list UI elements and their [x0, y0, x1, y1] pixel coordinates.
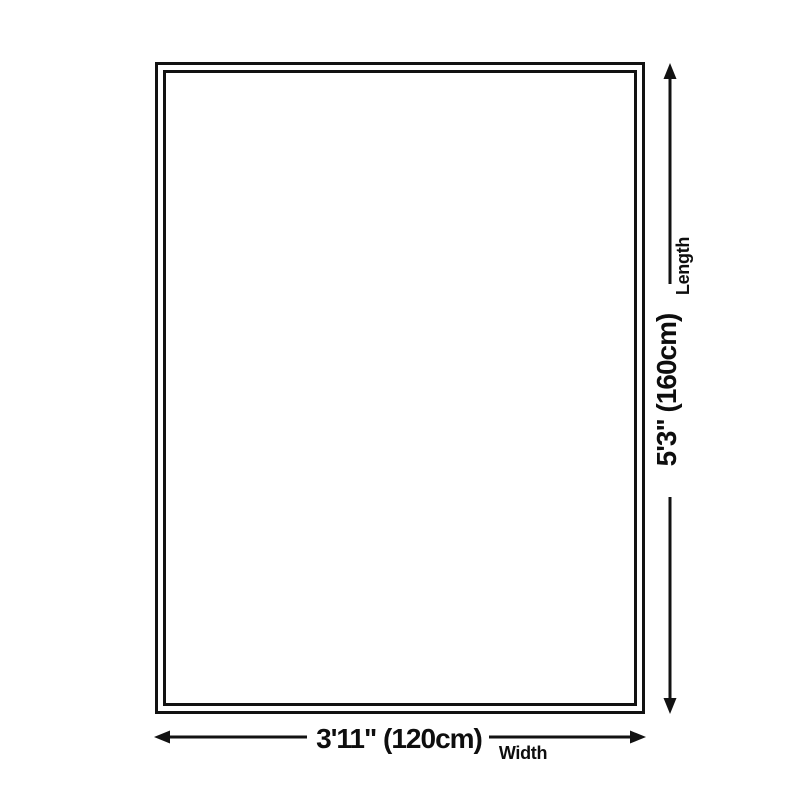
width-label: Width: [499, 744, 547, 762]
width-value: 3'11" (120cm): [316, 725, 482, 753]
length-label: Length: [674, 237, 692, 295]
rug-size-diagram: 5'3" (160cm) Length 3'11" (120cm) Width: [0, 0, 800, 800]
length-value: 5'3" (160cm): [653, 314, 681, 467]
